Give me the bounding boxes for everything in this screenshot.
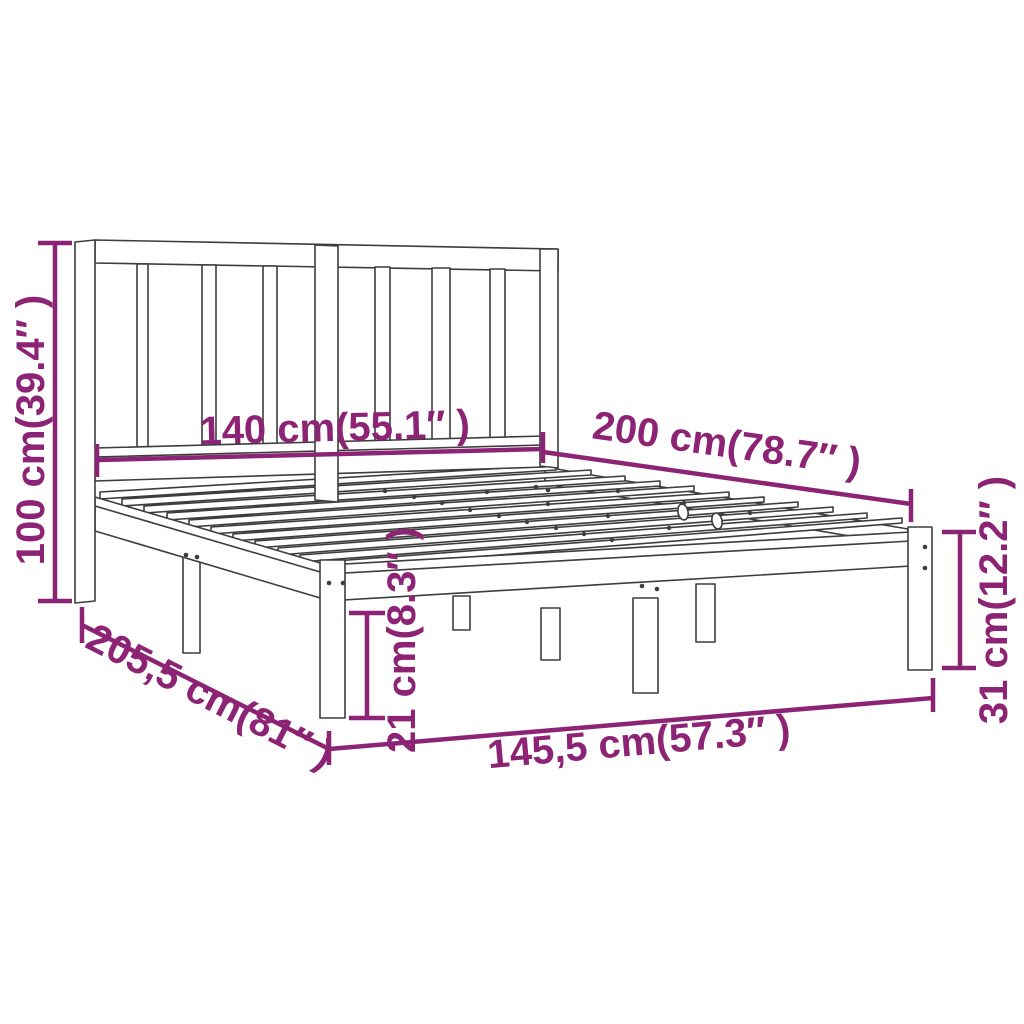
screw	[383, 489, 387, 493]
headboard-left-post	[75, 240, 95, 603]
screw	[485, 490, 489, 494]
label-leg-height: 21 cm(8.3″ )	[380, 527, 424, 753]
label-total-width: 145,5 cm(57.3″ )	[486, 707, 792, 777]
screw	[546, 488, 551, 493]
screw	[468, 508, 472, 512]
screw	[546, 502, 550, 506]
screw	[327, 581, 332, 586]
headboard-middle-post	[315, 245, 338, 502]
screw	[606, 514, 610, 518]
screw	[610, 538, 614, 542]
bed-leg-inner-4	[633, 598, 658, 693]
bed-leg-inner-3	[696, 584, 715, 642]
dimension-line-side-height	[942, 532, 976, 668]
bed-leg-foot-right	[908, 527, 932, 670]
screw	[640, 584, 645, 589]
headboard-slat-1	[137, 264, 148, 448]
screw	[748, 511, 752, 515]
screw	[667, 526, 671, 530]
bed-leg-inner-2	[541, 608, 560, 660]
screw	[923, 545, 928, 550]
diagram-canvas: 100 cm(39.4″ ) 140 cm(55.1″ ) 200 cm(78.…	[0, 0, 1024, 1024]
screw	[497, 514, 501, 518]
label-headboard-height: 100 cm(39.4″ )	[9, 295, 53, 565]
screw	[534, 485, 539, 490]
screw	[195, 555, 200, 560]
label-bed-length: 200 cm(78.7″ )	[590, 404, 864, 485]
screw	[655, 587, 660, 592]
screw	[582, 532, 586, 536]
screw	[412, 495, 416, 499]
bed-leg-inner-1	[453, 596, 470, 630]
bed-frame-drawing	[75, 240, 932, 718]
screw	[525, 520, 529, 524]
label-side-height: 31 cm(12.2″ )	[972, 476, 1016, 724]
label-total-length: 205,5 cm(81″ )	[79, 615, 340, 777]
headboard-slat-6	[490, 269, 505, 441]
screw	[682, 501, 686, 505]
screw	[184, 553, 189, 558]
screw	[616, 489, 620, 493]
label-bed-width: 140 cm(55.1″ )	[199, 402, 470, 453]
screw	[923, 566, 928, 571]
screw	[341, 581, 346, 586]
screw	[440, 501, 444, 505]
screw	[554, 526, 558, 530]
